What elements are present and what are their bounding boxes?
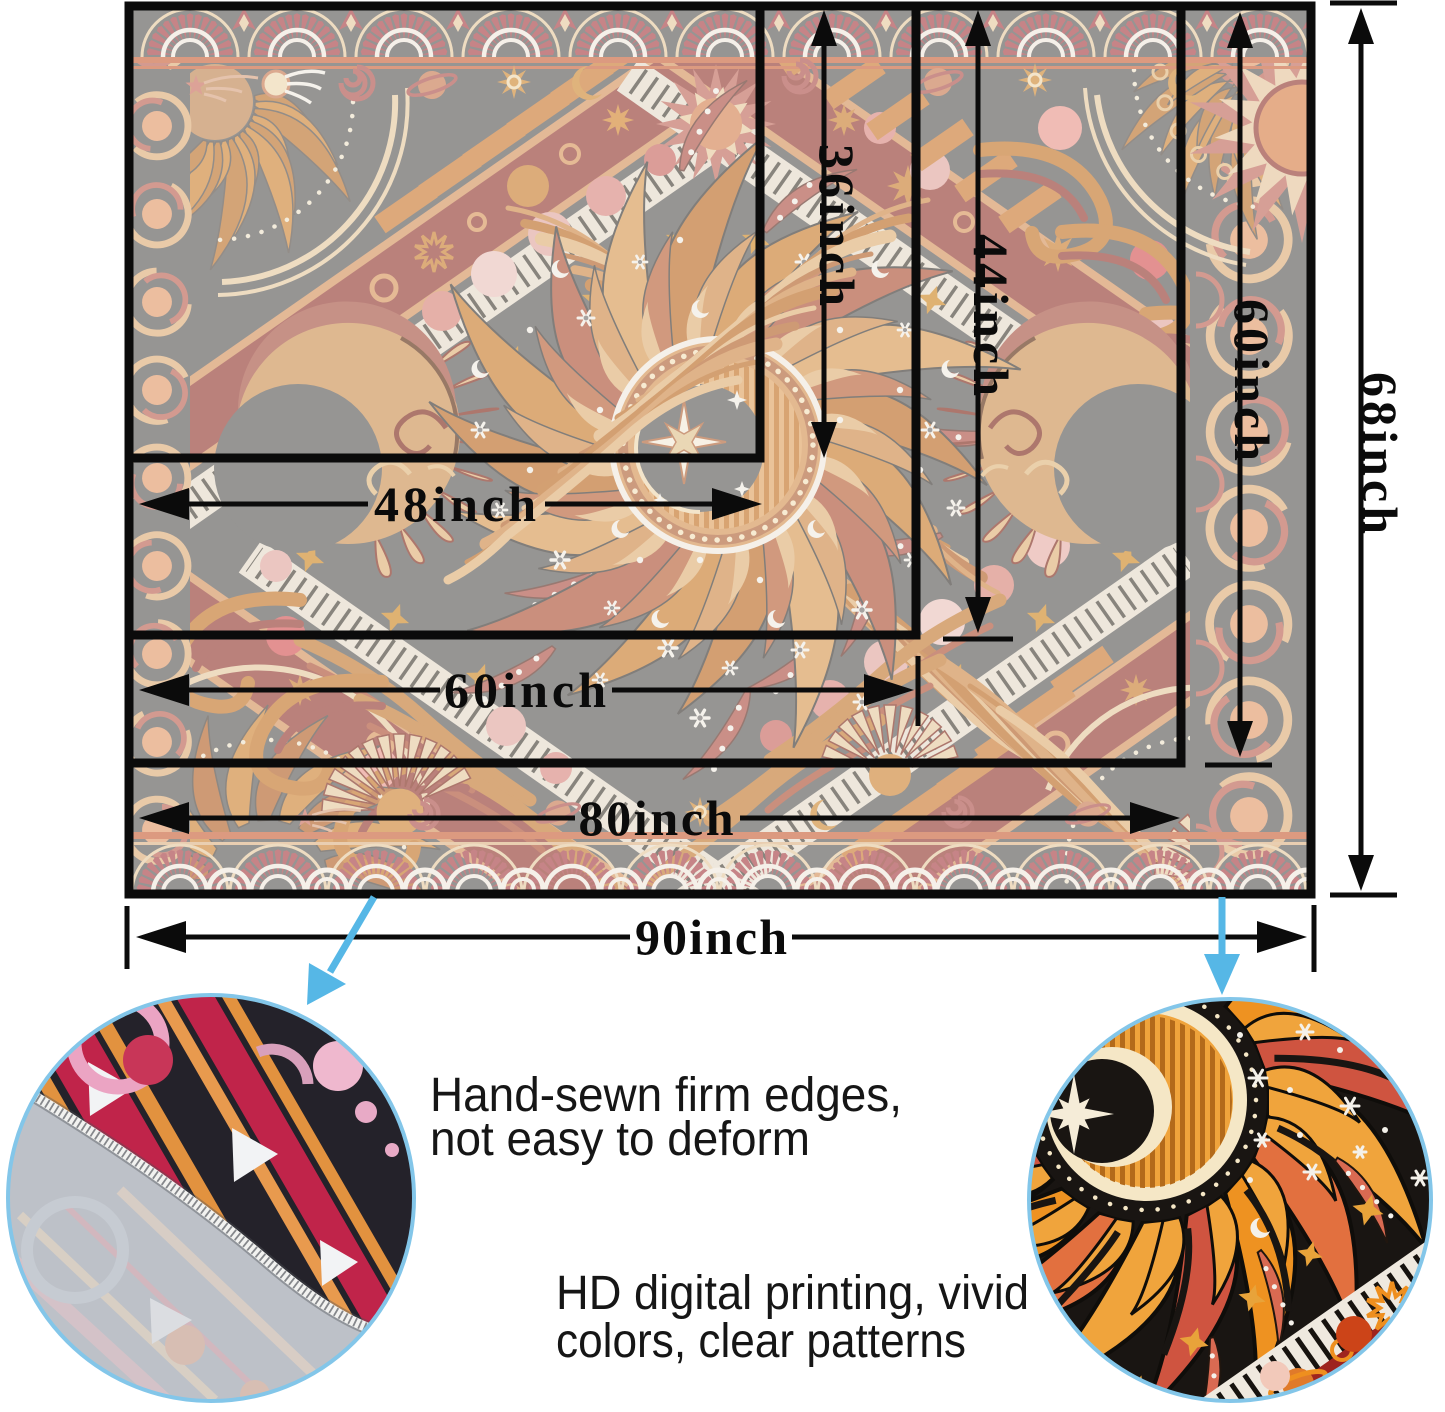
svg-text:60inch: 60inch xyxy=(444,662,606,718)
svg-text:48inch: 48inch xyxy=(374,476,536,532)
svg-text:HD digital printing, vivid: HD digital printing, vivid xyxy=(556,1267,1029,1320)
svg-text:68inch: 68inch xyxy=(1352,372,1408,534)
svg-text:80inch: 80inch xyxy=(579,790,734,846)
svg-text:60inch: 60inch xyxy=(1224,299,1280,461)
svg-text:44inch: 44inch xyxy=(963,234,1019,396)
svg-text:36inch: 36inch xyxy=(809,144,865,306)
svg-text:not easy to deform: not easy to deform xyxy=(430,1113,810,1166)
svg-text:90inch: 90inch xyxy=(635,909,787,965)
svg-text:colors, clear patterns: colors, clear patterns xyxy=(556,1315,966,1368)
